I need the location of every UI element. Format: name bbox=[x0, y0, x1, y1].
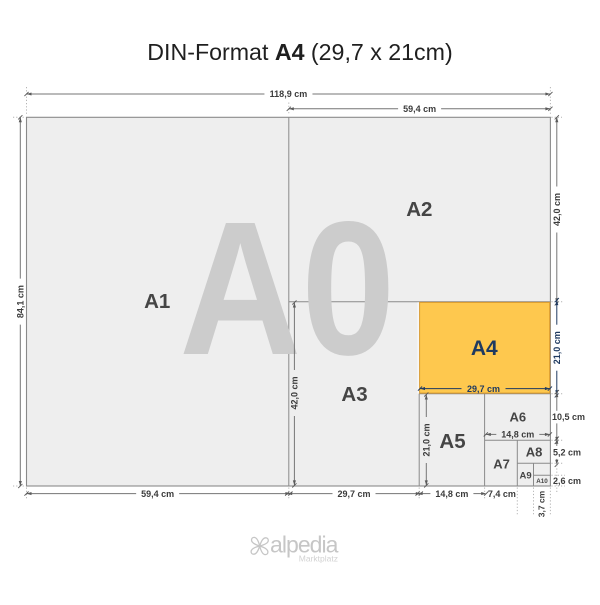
svg-text:Marktplatz: Marktplatz bbox=[299, 554, 338, 564]
svg-text:A6: A6 bbox=[509, 410, 526, 425]
svg-text:2,6 cm: 2,6 cm bbox=[553, 476, 581, 486]
svg-text:10,5 cm: 10,5 cm bbox=[552, 412, 585, 422]
svg-text:118,9 cm: 118,9 cm bbox=[270, 89, 308, 99]
svg-text:14,8 cm: 14,8 cm bbox=[435, 489, 468, 499]
svg-text:29,7 cm: 29,7 cm bbox=[467, 384, 500, 394]
svg-text:A7: A7 bbox=[493, 457, 510, 472]
svg-text:A3: A3 bbox=[341, 383, 367, 406]
svg-text:A1: A1 bbox=[144, 290, 170, 313]
svg-text:A4: A4 bbox=[471, 337, 498, 360]
svg-text:A0: A0 bbox=[179, 183, 395, 395]
svg-text:14,8 cm: 14,8 cm bbox=[501, 430, 534, 440]
svg-text:42,0 cm: 42,0 cm bbox=[552, 193, 562, 226]
svg-text:59,4 cm: 59,4 cm bbox=[141, 489, 174, 499]
svg-text:59,4 cm: 59,4 cm bbox=[403, 104, 436, 114]
svg-text:A9: A9 bbox=[520, 470, 532, 481]
svg-text:A2: A2 bbox=[406, 198, 432, 221]
svg-text:5,2 cm: 5,2 cm bbox=[553, 447, 581, 457]
svg-text:7,4 cm: 7,4 cm bbox=[488, 489, 516, 499]
svg-text:21,0 cm: 21,0 cm bbox=[552, 331, 562, 364]
svg-text:21,0 cm: 21,0 cm bbox=[422, 423, 432, 456]
svg-text:A10: A10 bbox=[536, 478, 548, 485]
svg-text:DIN-Format A4 (29,7 x 21cm): DIN-Format A4 (29,7 x 21cm) bbox=[147, 39, 452, 65]
svg-text:84,1 cm: 84,1 cm bbox=[16, 285, 26, 318]
svg-text:42,0 cm: 42,0 cm bbox=[290, 376, 300, 409]
svg-text:A5: A5 bbox=[439, 430, 465, 453]
svg-text:29,7 cm: 29,7 cm bbox=[337, 489, 370, 499]
svg-text:A8: A8 bbox=[526, 445, 543, 460]
svg-text:3,7 cm: 3,7 cm bbox=[537, 490, 547, 517]
